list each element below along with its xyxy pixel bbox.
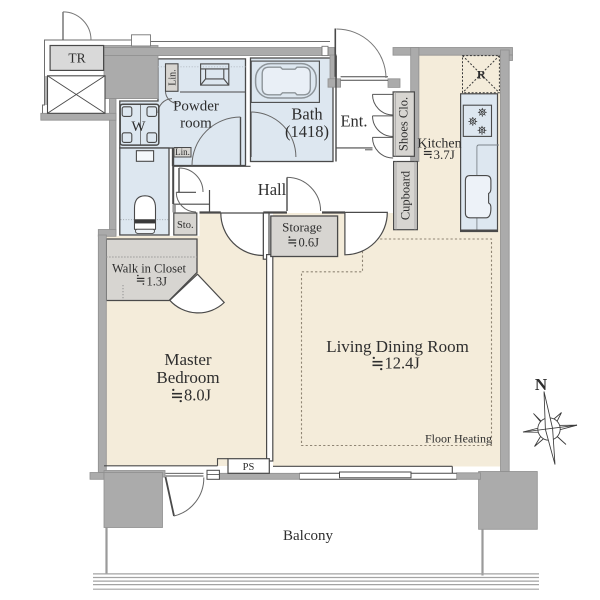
svg-text:W: W: [131, 119, 146, 135]
svg-text:Lin.: Lin.: [167, 69, 178, 85]
svg-text:Storage: Storage: [282, 220, 322, 235]
svg-text:Shoes Clo.: Shoes Clo.: [397, 97, 411, 151]
svg-text:Powder: Powder: [173, 99, 219, 115]
svg-text:Hall: Hall: [258, 180, 287, 199]
svg-text:Walk in Closet: Walk in Closet: [112, 262, 187, 276]
svg-text:room: room: [180, 116, 212, 132]
svg-text:Cupboard: Cupboard: [399, 170, 413, 220]
svg-text:Floor Heating: Floor Heating: [425, 432, 492, 446]
svg-text:3.7J: 3.7J: [434, 147, 455, 162]
svg-text:0.6J: 0.6J: [299, 236, 320, 250]
svg-text:N: N: [535, 375, 548, 394]
svg-text:Balcony: Balcony: [283, 528, 333, 544]
svg-text:Sto.: Sto.: [177, 220, 194, 231]
svg-text:Lin.: Lin.: [175, 147, 190, 157]
svg-text:8.0J: 8.0J: [184, 386, 212, 405]
svg-text:Bath: Bath: [291, 105, 323, 124]
svg-text:Master: Master: [164, 350, 212, 369]
svg-text:1.3J: 1.3J: [147, 275, 168, 289]
svg-text:Bedroom: Bedroom: [156, 368, 219, 387]
svg-text:12.4J: 12.4J: [385, 354, 421, 373]
svg-text:PS: PS: [243, 462, 255, 473]
svg-text:R: R: [477, 68, 486, 82]
svg-text:Ent.: Ent.: [340, 112, 367, 131]
svg-text:TR: TR: [68, 51, 85, 66]
svg-text:(1418): (1418): [285, 122, 329, 141]
